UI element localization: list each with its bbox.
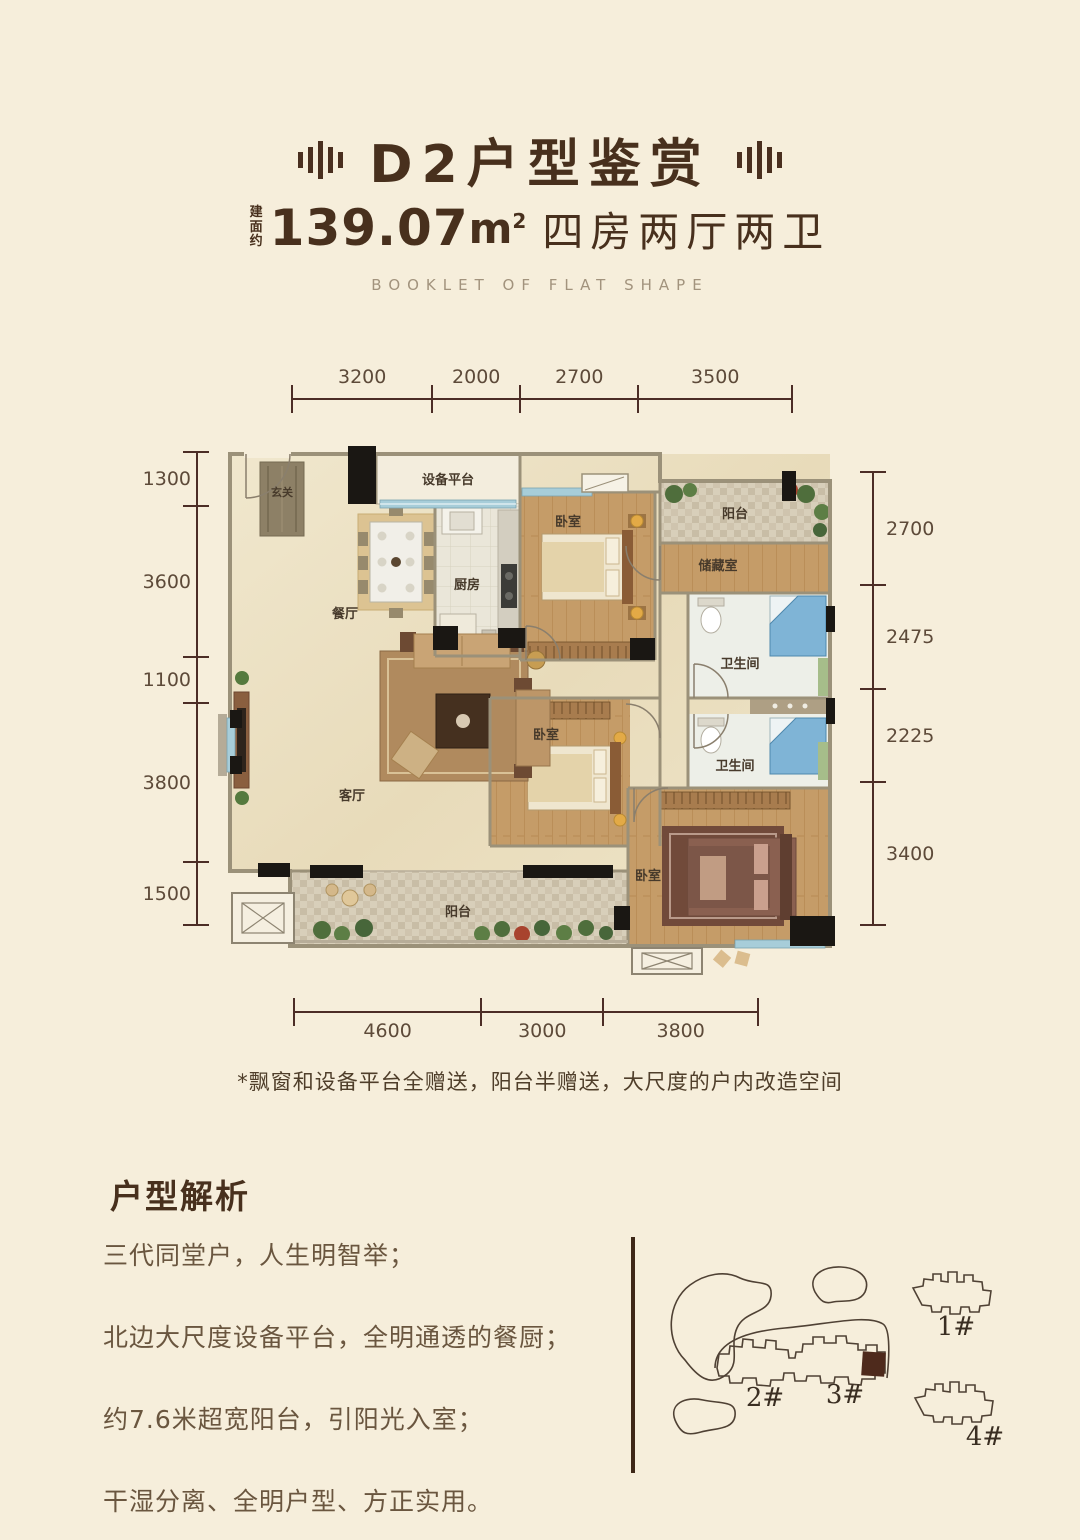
dim-tick (183, 924, 209, 926)
dim-value: 1500 (143, 883, 191, 905)
dim-tick (293, 998, 295, 1026)
label-kitchen: 厨房 (454, 577, 480, 593)
dimension-line-right: 2700247522253400 (860, 472, 920, 925)
ac-platform-south (632, 948, 750, 974)
dim-tick (480, 998, 482, 1026)
landscape-blob (813, 1267, 867, 1303)
dim-tick (183, 861, 209, 863)
dim-tick (860, 688, 886, 690)
dim-axis-line (292, 398, 792, 400)
header-title-row: D2户型鉴赏 (0, 122, 1080, 197)
label-bedroom-south: 卧室 (635, 868, 661, 884)
brochure-page: D2户型鉴赏 建面约 139.07 m2 四房两厅两卫 BOOKLET OF F… (0, 0, 1080, 1540)
dim-tick (602, 998, 604, 1026)
area-unit: m2 (469, 204, 527, 253)
floor-plan: 玄关 设备平台 厨房 餐厅 卧室 阳台 储藏室 卫生间 卫生间 客厅 卧室 卧室… (215, 446, 840, 978)
dim-tick (860, 924, 886, 926)
dim-value: 3000 (518, 1020, 566, 1042)
dim-tick (431, 385, 433, 413)
analysis-point: 北边大尺度设备平台，全明通透的餐厨； (103, 1318, 603, 1354)
dim-axis-line (196, 452, 198, 925)
dimension-line-top: 3200200027003500 (292, 366, 792, 414)
label-equipment: 设备平台 (422, 472, 474, 488)
label-dining: 餐厅 (331, 606, 358, 622)
site-map: 2# 3# 1# 4# (645, 1240, 1065, 1510)
area-row: 建面约 139.07 m2 四房两厅两卫 (0, 198, 1080, 258)
label-bedroom-north: 卧室 (555, 514, 581, 530)
label-bathroom-2: 卫生间 (715, 758, 754, 774)
dim-value: 2000 (452, 366, 500, 388)
building-label-4: 4# (966, 1422, 1004, 1452)
building-label-3: 3# (826, 1380, 864, 1410)
dim-axis-line (872, 472, 874, 925)
analysis-point: 约7.6米超宽阳台，引阳光入室； (103, 1400, 603, 1436)
ac-platform-west (232, 893, 294, 943)
layout-text: 四房两厅两卫 (542, 198, 830, 258)
dim-tick (519, 385, 521, 413)
entry-door-gap (244, 449, 291, 458)
dining-set (358, 506, 434, 618)
dim-value: 3800 (143, 772, 191, 794)
label-bedroom-middle: 卧室 (533, 727, 559, 743)
landscape-blob (671, 1274, 771, 1380)
dim-value: 2225 (886, 725, 934, 747)
subtitle-english: BOOKLET OF FLAT SHAPE (0, 276, 1080, 294)
dim-value: 2475 (886, 626, 934, 648)
dim-tick (183, 505, 209, 507)
dim-value: 1100 (143, 669, 191, 691)
dim-tick (637, 385, 639, 413)
dim-tick (757, 998, 759, 1026)
dim-value: 3200 (338, 366, 386, 388)
bars-emblem-icon (298, 141, 343, 179)
dim-value: 3600 (143, 571, 191, 593)
building-1-outline (913, 1272, 991, 1314)
dim-tick (860, 471, 886, 473)
dimension-line-bottom: 460030003800 (294, 998, 758, 1042)
area-value: 139.07 (270, 199, 469, 257)
dim-tick (860, 781, 886, 783)
label-storage: 储藏室 (697, 558, 737, 574)
section-divider (631, 1237, 635, 1473)
building-label-1: 1# (937, 1312, 975, 1342)
landscape-blob (674, 1399, 735, 1434)
building-2-3-outline (717, 1336, 885, 1386)
dim-tick (183, 702, 209, 704)
dim-tick (183, 656, 209, 658)
dim-axis-line (294, 1011, 758, 1013)
dim-value: 2700 (886, 518, 934, 540)
label-entry: 玄关 (271, 485, 293, 499)
dim-tick (183, 451, 209, 453)
area-prefix: 建面约 (250, 206, 265, 251)
label-living: 客厅 (339, 788, 365, 804)
dim-value: 1300 (143, 468, 191, 490)
highlighted-unit (861, 1351, 886, 1377)
dim-value: 3800 (656, 1020, 704, 1042)
dim-value: 3400 (886, 843, 934, 865)
bars-emblem-icon (737, 141, 782, 179)
analysis-point: 三代同堂户，人生明智举； (103, 1236, 603, 1272)
footnote: *飘窗和设备平台全赠送，阳台半赠送，大尺度的户内改造空间 (0, 1066, 1080, 1096)
building-label-2: 2# (746, 1383, 784, 1413)
dim-value: 4600 (363, 1020, 411, 1042)
analysis-points: 三代同堂户，人生明智举； 北边大尺度设备平台，全明通透的餐厨； 约7.6米超宽阳… (103, 1236, 603, 1540)
label-bathroom-1: 卫生间 (720, 656, 759, 672)
balcony-railing (290, 940, 628, 943)
dimension-line-left: 13003600110038001500 (160, 452, 220, 925)
label-balcony-north: 阳台 (722, 506, 748, 522)
analysis-point: 干湿分离、全明户型、方正实用。 (103, 1482, 603, 1518)
room-storage (660, 543, 830, 593)
dim-tick (860, 584, 886, 586)
page-title: D2户型鉴赏 (369, 122, 710, 197)
dim-tick (291, 385, 293, 413)
dim-value: 2700 (555, 366, 603, 388)
dim-value: 3500 (691, 366, 739, 388)
analysis-heading: 户型解析 (110, 1170, 250, 1218)
label-balcony-south: 阳台 (445, 904, 471, 920)
dim-tick (791, 385, 793, 413)
building-4-outline (915, 1382, 993, 1424)
